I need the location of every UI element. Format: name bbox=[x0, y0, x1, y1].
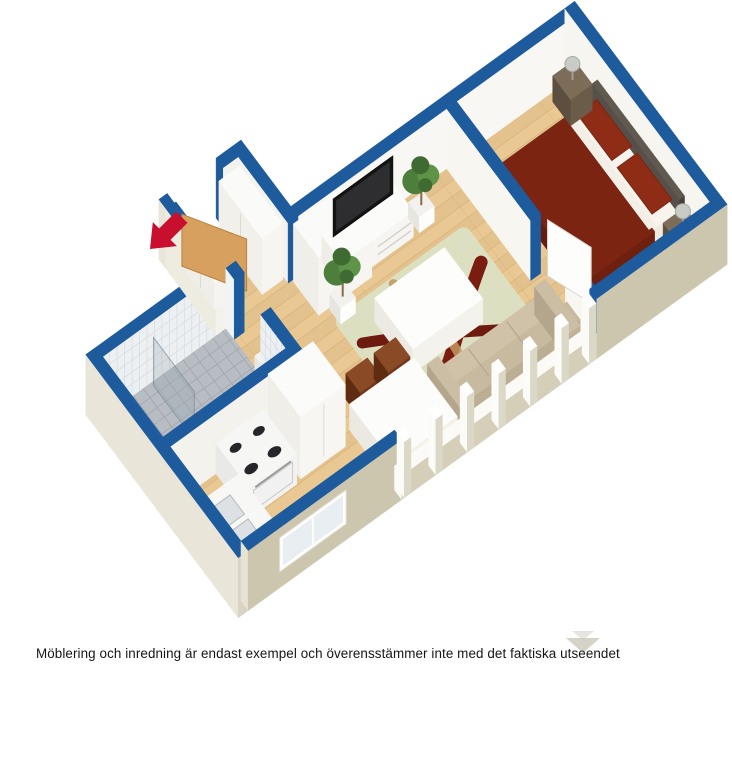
disclaimer-text: Möblering och inredning är endast exempe… bbox=[36, 646, 620, 661]
floorplan-page: Möblering och inredning är endast exempe… bbox=[0, 0, 732, 768]
